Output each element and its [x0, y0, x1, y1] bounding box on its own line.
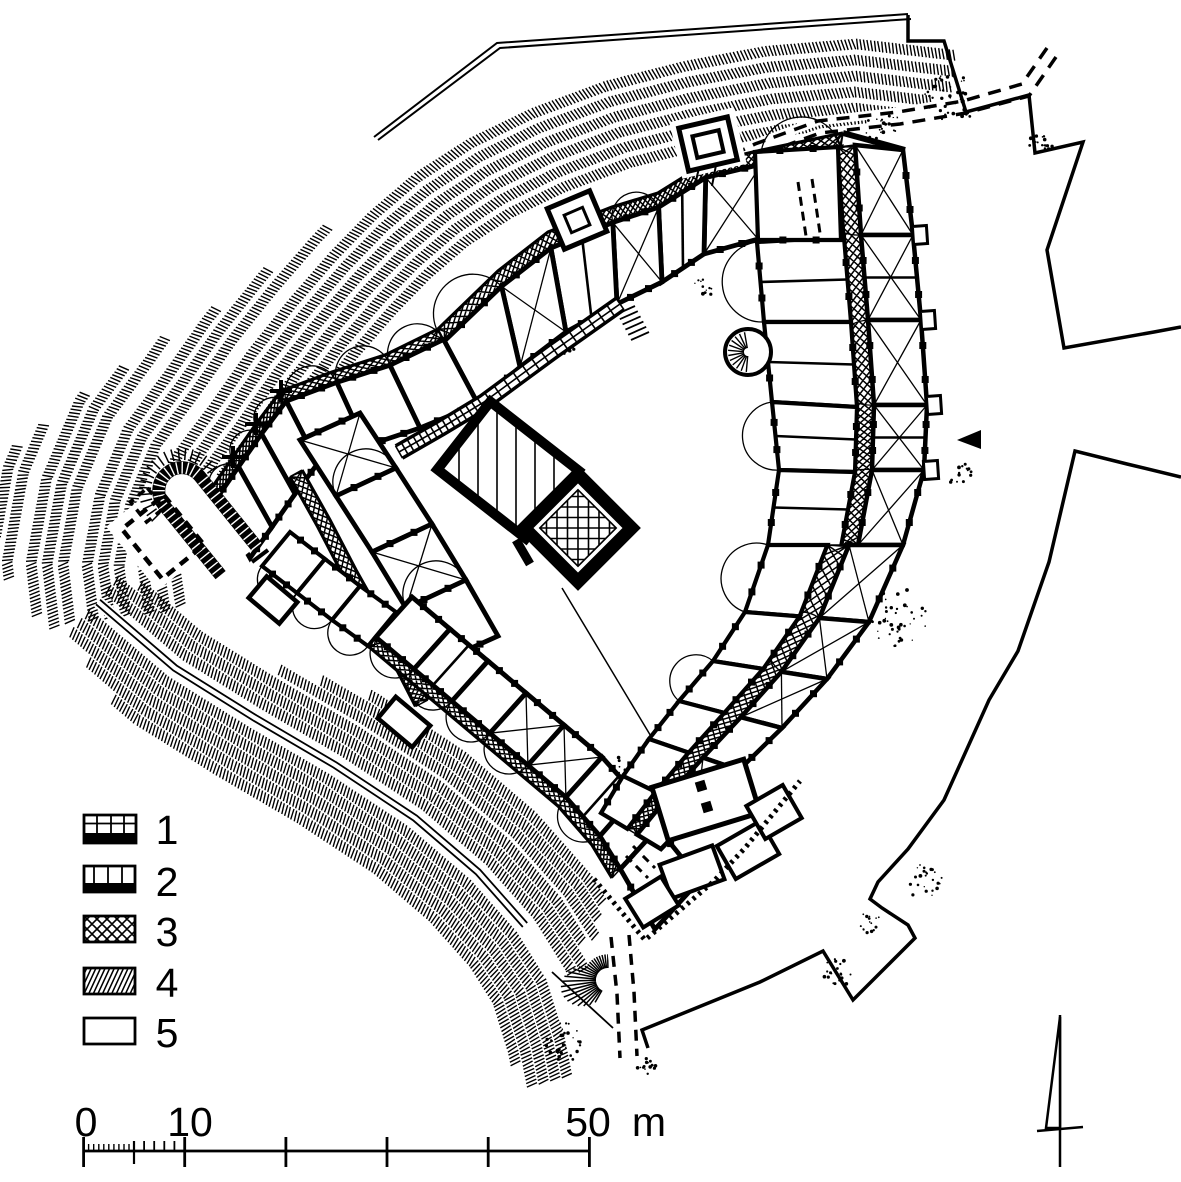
svg-text:1: 1: [156, 807, 179, 853]
svg-text:10: 10: [167, 1099, 213, 1145]
svg-text:m: m: [632, 1099, 666, 1145]
svg-text:50: 50: [565, 1099, 611, 1145]
svg-text:5: 5: [156, 1010, 179, 1056]
svg-text:0: 0: [75, 1099, 98, 1145]
svg-text:3: 3: [156, 909, 179, 955]
svg-text:2: 2: [156, 859, 179, 905]
svg-text:4: 4: [156, 960, 179, 1006]
